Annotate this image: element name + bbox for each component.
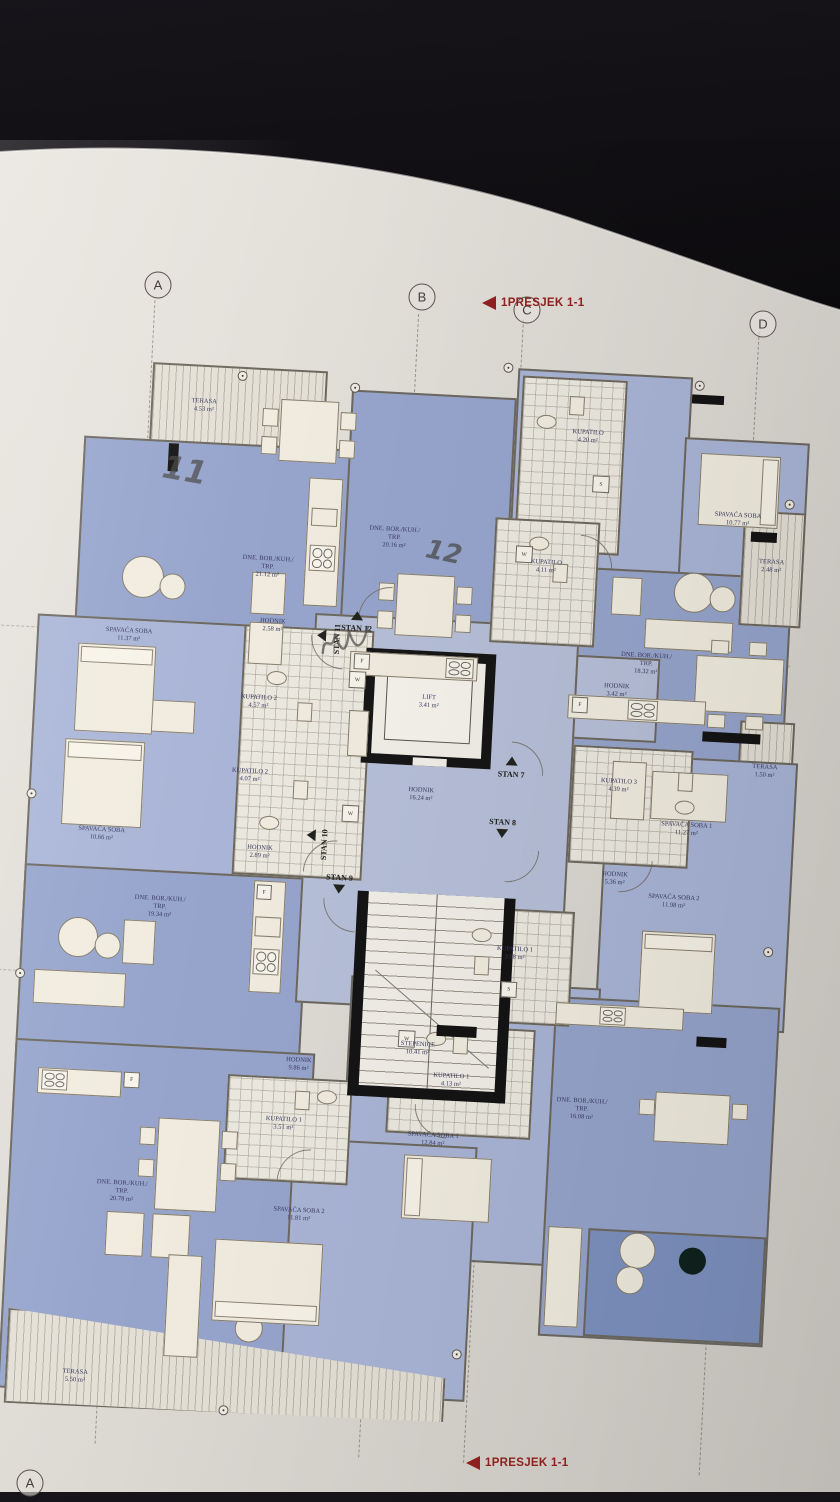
handwritten-squiggle (317, 622, 378, 661)
room-label-bedroom-l2: SPAVAĆA SOBA10.66 m² (78, 825, 125, 844)
grid-bubble-d: D (750, 311, 777, 338)
room-label-hodnik-ul: HODNIK2.58 m² (259, 617, 285, 635)
wall-chunk (751, 532, 777, 543)
room-label-terasa-r: TERASA1.50 m² (752, 763, 778, 781)
room-label-stepenice: STEPENICE10.41 m² (400, 1040, 435, 1058)
room-label-living-bl: DNE. BOR./KUH./ TRP.20.78 m² (90, 1178, 153, 1206)
room-label-hodnik-r2: HODNIK5.36 m² (602, 870, 628, 888)
wall-chunk (696, 1037, 726, 1049)
fridge-box: F (571, 697, 588, 714)
room-label-terasa-tl: TERASA4.53 m² (191, 397, 217, 415)
washer-box: W (348, 671, 366, 689)
section-arrow-icon (466, 1456, 480, 1470)
section-marker-bottom: 1PRESJEK 1-1 (466, 1456, 569, 1470)
wall-chunk (436, 1025, 477, 1038)
section-arrow-icon (482, 296, 496, 310)
room-label-terasa-b: TERASA5.50 m² (62, 1368, 88, 1386)
room-label-living-r: DNE. BOR./KUH./ TRP.18.32 m² (614, 651, 677, 679)
handwritten-11: 11 (160, 447, 210, 492)
dryer-box: S (500, 981, 517, 998)
living-bottom-right-dark (583, 1228, 766, 1345)
floor-plan: F F F F W W W W S S TERASA4.53 m² DNE. B… (0, 268, 812, 1502)
room-label-living-ml: DNE. BOR./KUH./ TRP.19.34 m² (128, 893, 191, 921)
wall-chunk (692, 394, 724, 405)
room-label-kupatilo2a: KUPATILO 24.57 m² (240, 693, 277, 711)
room-label-terasa-tr: TERASA2.48 m² (758, 558, 784, 576)
room-label-hodnik-r: HODNIK3.42 m² (603, 682, 629, 700)
fridge-box: F (123, 1072, 140, 1089)
fridge-box: F (256, 884, 272, 900)
room-label-living-br: DNE. BOR./KUH./ TRP.16.08 m² (550, 1096, 613, 1124)
washer-box: W (341, 805, 359, 823)
stan-marker-7: STAN 7 (498, 769, 525, 779)
stan-marker-9: STAN 9 (326, 872, 353, 882)
room-label-bedroom-tr: SPAVAĆA SOBA10.77 m² (714, 511, 761, 530)
grid-bubble-a-bottom: A (17, 1470, 44, 1497)
room-label-bedroom-r2: SPAVAĆA SOBA 211.98 m² (648, 893, 700, 912)
grid-bubble-a: A (145, 272, 172, 299)
stan-marker-10: STAN 10 (319, 829, 330, 860)
room-label-living-tl: DNE. BOR./KUH./ TRP.21.12 m² (236, 554, 299, 582)
room-label-hodnik-l: HODNIK2.89 m² (246, 844, 272, 862)
room-label-bedroom-b1: SPAVAĆA SOBA 112.84 m² (407, 1130, 459, 1149)
room-label-bedroom-bl2: SPAVAĆA SOBA 211.81 m² (273, 1205, 325, 1224)
stan-marker-8: STAN 8 (489, 817, 516, 827)
room-label-kupatilo1b: KUPATILO 14.13 m² (433, 1072, 470, 1090)
room-label-hodnik-b: HODNIK9.86 m² (285, 1056, 311, 1074)
room-label-kupatilo-t2: KUPATILO4.11 m² (530, 558, 562, 576)
stairwell (347, 891, 516, 1104)
room-label-living-12: DNE. BOR./KUH./ TRP.20.16 m² (363, 524, 426, 552)
room-label-kupatilo2b: KUPATILO 24.07 m² (231, 767, 268, 785)
dryer-box: S (592, 475, 610, 493)
room-label-kupatilo1a: KUPATILO 13.51 m² (265, 1115, 302, 1133)
section-marker-top: 1PRESJEK 1-1 (482, 296, 585, 310)
room-label-kupatilo3: KUPATILO 34.39 m² (600, 777, 637, 795)
photo-of-floor-plan: { "drawing": { "type": "architectural fl… (0, 0, 840, 1492)
room-label-bedroom-l1: SPAVAĆA SOBA11.37 m² (105, 626, 152, 645)
room-label-lift: LIFT3.41 m² (418, 693, 439, 710)
room-label-kupatilo-t1: KUPATILO4.20 m² (572, 428, 604, 446)
room-label-kupatilo1c: KUPATILO 13.08 m² (496, 945, 533, 963)
grid-bubble-b: B (409, 284, 436, 311)
room-label-hodnik-central: HODNIK16.24 m² (408, 786, 434, 804)
room-label-bedroom-r1: SPAVAĆA SOBA 111.27 m² (660, 820, 712, 839)
